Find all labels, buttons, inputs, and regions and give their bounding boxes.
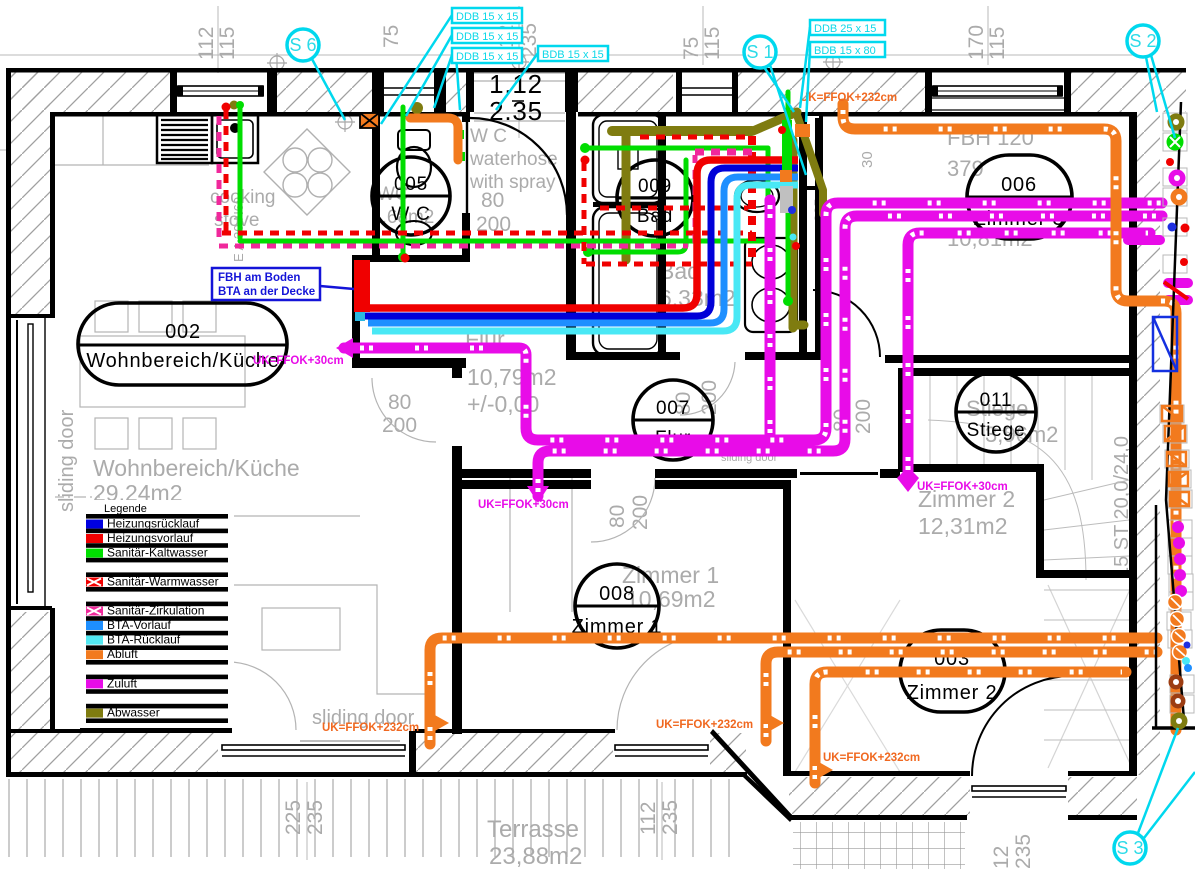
svg-text:UK=FFOK+232cm: UK=FFOK+232cm <box>800 92 897 104</box>
svg-text:W C: W C <box>391 204 430 225</box>
svg-text:235: 235 <box>659 800 682 835</box>
svg-text:Wohnbereich/Küche: Wohnbereich/Küche <box>93 455 300 481</box>
svg-text:005: 005 <box>394 174 428 195</box>
svg-text:Terrasse: Terrasse <box>487 816 579 843</box>
svg-text:12: 12 <box>990 846 1013 869</box>
svg-text:80: 80 <box>388 391 411 414</box>
svg-text:007: 007 <box>656 398 690 419</box>
svg-text:BDB 15 x 80: BDB 15 x 80 <box>814 45 876 57</box>
svg-text:W C: W C <box>470 126 507 147</box>
svg-text:DDB 25 x 15: DDB 25 x 15 <box>814 23 876 35</box>
svg-text:011: 011 <box>980 390 1013 411</box>
svg-text:Abwasser: Abwasser <box>107 706 160 720</box>
svg-text:BTA-Vorlauf: BTA-Vorlauf <box>107 618 171 632</box>
svg-text:200: 200 <box>852 399 875 434</box>
svg-text:Legende: Legende <box>104 503 147 515</box>
svg-text:S 6: S 6 <box>289 35 316 55</box>
svg-text:UK=FFOK+232cm: UK=FFOK+232cm <box>322 722 419 734</box>
svg-text:UK=FFOK+232cm: UK=FFOK+232cm <box>823 752 920 764</box>
svg-text:Wohnbereich/Küche: Wohnbereich/Küche <box>86 350 279 372</box>
svg-text:115: 115 <box>701 27 724 60</box>
svg-text:Sanitär-Zirkulation: Sanitär-Zirkulation <box>107 604 204 618</box>
svg-text:115: 115 <box>216 27 239 60</box>
svg-text:200: 200 <box>698 380 721 415</box>
svg-text:DDB 15 x 15: DDB 15 x 15 <box>456 11 518 23</box>
svg-text:112: 112 <box>195 27 218 60</box>
svg-text:FBH am Boden: FBH am Boden <box>218 272 300 284</box>
svg-text:115: 115 <box>986 27 1009 60</box>
svg-text:Heizungsvorlauf: Heizungsvorlauf <box>107 531 194 545</box>
svg-text:Abluft: Abluft <box>107 647 138 661</box>
svg-text:Sanitär-Kaltwasser: Sanitär-Kaltwasser <box>107 546 208 560</box>
svg-text:UK=FFOK+232cm: UK=FFOK+232cm <box>656 719 753 731</box>
svg-text:30: 30 <box>859 151 876 168</box>
svg-text:DDB 15 x 15: DDB 15 x 15 <box>456 31 518 43</box>
svg-text:235: 235 <box>1012 834 1035 869</box>
svg-text:Zimmer 1: Zimmer 1 <box>622 562 719 588</box>
svg-text:10,79m2: 10,79m2 <box>467 364 557 390</box>
svg-text:Stiege: Stiege <box>967 420 1026 441</box>
svg-text:75: 75 <box>680 37 703 60</box>
svg-text:Heizungsrücklauf: Heizungsrücklauf <box>107 517 200 531</box>
svg-text:DDB 15 x 15: DDB 15 x 15 <box>456 51 518 63</box>
svg-text:10,69m2: 10,69m2 <box>626 586 716 612</box>
svg-text:75: 75 <box>380 25 403 48</box>
svg-text:23,88m2: 23,88m2 <box>489 843 582 869</box>
svg-text:UK=FFOK+30cm: UK=FFOK+30cm <box>253 355 344 367</box>
svg-text:UK=FFOK+30cm: UK=FFOK+30cm <box>478 499 569 511</box>
svg-text:Sanitär-Warmwasser: Sanitär-Warmwasser <box>107 575 219 589</box>
svg-text:12,31m2: 12,31m2 <box>918 513 1008 539</box>
svg-text:S 1: S 1 <box>746 42 773 62</box>
svg-text:002: 002 <box>165 321 201 343</box>
svg-text:006: 006 <box>1001 174 1037 196</box>
svg-text:200: 200 <box>382 414 417 437</box>
svg-text:009: 009 <box>638 176 672 197</box>
svg-text:112: 112 <box>637 802 660 835</box>
svg-text:200: 200 <box>629 495 652 530</box>
svg-text:BTA-Rücklauf: BTA-Rücklauf <box>107 633 181 647</box>
svg-text:Zimmer 2: Zimmer 2 <box>907 682 998 704</box>
svg-text:Zuluft: Zuluft <box>107 676 138 690</box>
svg-text:UK=FFOK+30cm: UK=FFOK+30cm <box>917 481 1008 493</box>
svg-text:S 2: S 2 <box>1129 31 1156 51</box>
svg-text:225: 225 <box>282 800 305 835</box>
svg-text:BTA an der Decke: BTA an der Decke <box>218 286 315 298</box>
svg-text:S 3: S 3 <box>1116 838 1143 858</box>
svg-text:80: 80 <box>481 189 504 212</box>
svg-text:170: 170 <box>965 25 988 60</box>
svg-text:BDB 15 x 15: BDB 15 x 15 <box>542 49 604 61</box>
svg-text:80: 80 <box>606 505 629 528</box>
svg-text:008: 008 <box>599 583 635 605</box>
svg-text:235: 235 <box>304 800 327 835</box>
